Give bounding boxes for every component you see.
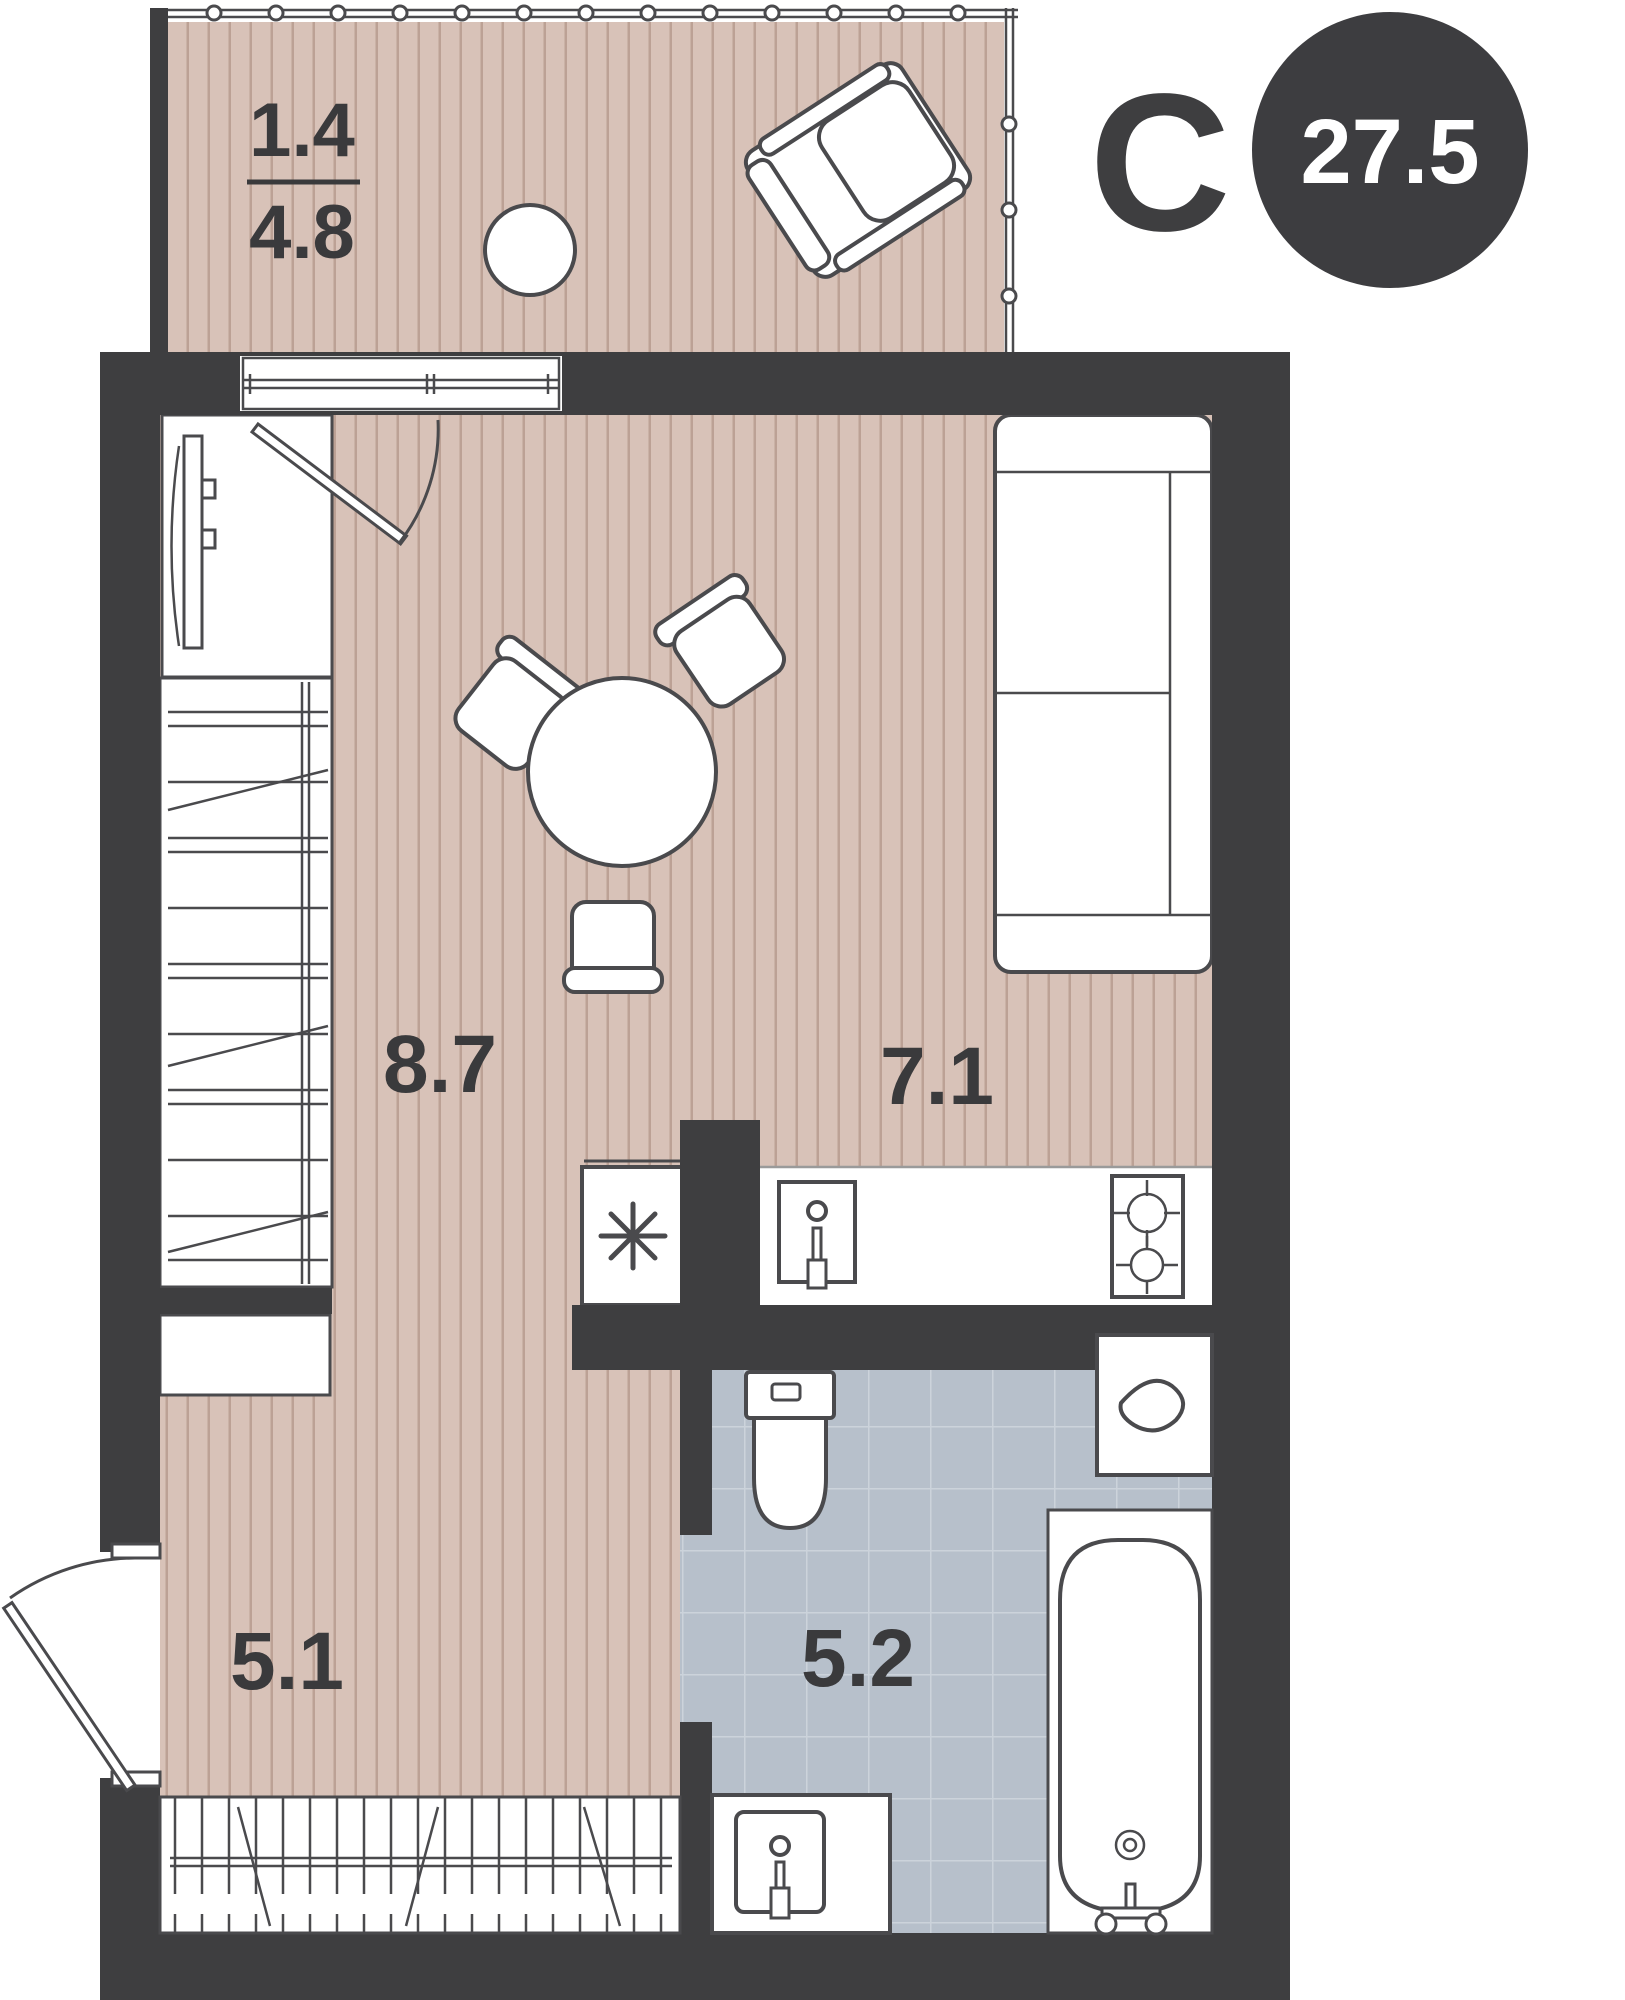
balcony-table xyxy=(485,205,575,295)
balcony-area-label: 1.4 4.8 xyxy=(247,88,360,275)
sofa xyxy=(995,415,1212,972)
snowflake-icon xyxy=(601,1204,665,1268)
hallway-floor xyxy=(160,1370,680,1797)
toilet-icon xyxy=(746,1372,834,1528)
bathroom-partition-lower xyxy=(680,1722,712,1933)
compass-north-letter: С xyxy=(1089,53,1231,272)
dining-table xyxy=(528,678,716,866)
bathtub-icon xyxy=(1048,1510,1212,1934)
balcony: 1.4 4.8 xyxy=(150,6,1018,352)
room-label-living: 8.7 xyxy=(383,1019,497,1110)
tv-unit xyxy=(162,415,332,677)
total-area-badge: 27.5 xyxy=(1252,12,1528,288)
stool xyxy=(564,902,662,992)
bottom-wall xyxy=(100,1933,1290,2000)
balcony-side-wall xyxy=(150,8,168,352)
room-label-bathroom: 5.2 xyxy=(801,1613,915,1704)
room-label-hallway: 5.1 xyxy=(230,1616,344,1707)
hallway-upper-floor xyxy=(330,1305,572,1370)
balcony-area-reduced: 1.4 xyxy=(249,88,355,173)
bathroom-top-wall xyxy=(572,1305,1097,1370)
kitchen-sink-icon xyxy=(779,1182,855,1288)
vanity-sink-icon xyxy=(712,1795,890,1933)
stove-icon xyxy=(1112,1176,1183,1297)
floor-plan: 1.4 4.8 xyxy=(0,0,1625,2000)
balcony-area-full: 4.8 xyxy=(249,190,355,275)
floor-plan-svg: 1.4 4.8 xyxy=(0,0,1625,2000)
room-label-kitchen: 7.1 xyxy=(880,1031,994,1122)
shoe-cabinet xyxy=(160,1315,330,1395)
wardrobe xyxy=(160,678,332,1287)
entrance-door xyxy=(4,1544,160,1791)
bathroom-doorway-floor xyxy=(680,1535,712,1722)
coat-rack xyxy=(160,1797,680,1933)
right-wall xyxy=(1212,352,1290,2000)
bathroom-partition-upper xyxy=(680,1370,712,1535)
bathroom-top-wall-right xyxy=(1097,1305,1212,1335)
kitchen-counter xyxy=(760,1166,1212,1305)
washing-machine-icon xyxy=(1097,1335,1212,1475)
badge-value: 27.5 xyxy=(1300,101,1479,203)
hallway-stub-wall xyxy=(160,1288,332,1314)
